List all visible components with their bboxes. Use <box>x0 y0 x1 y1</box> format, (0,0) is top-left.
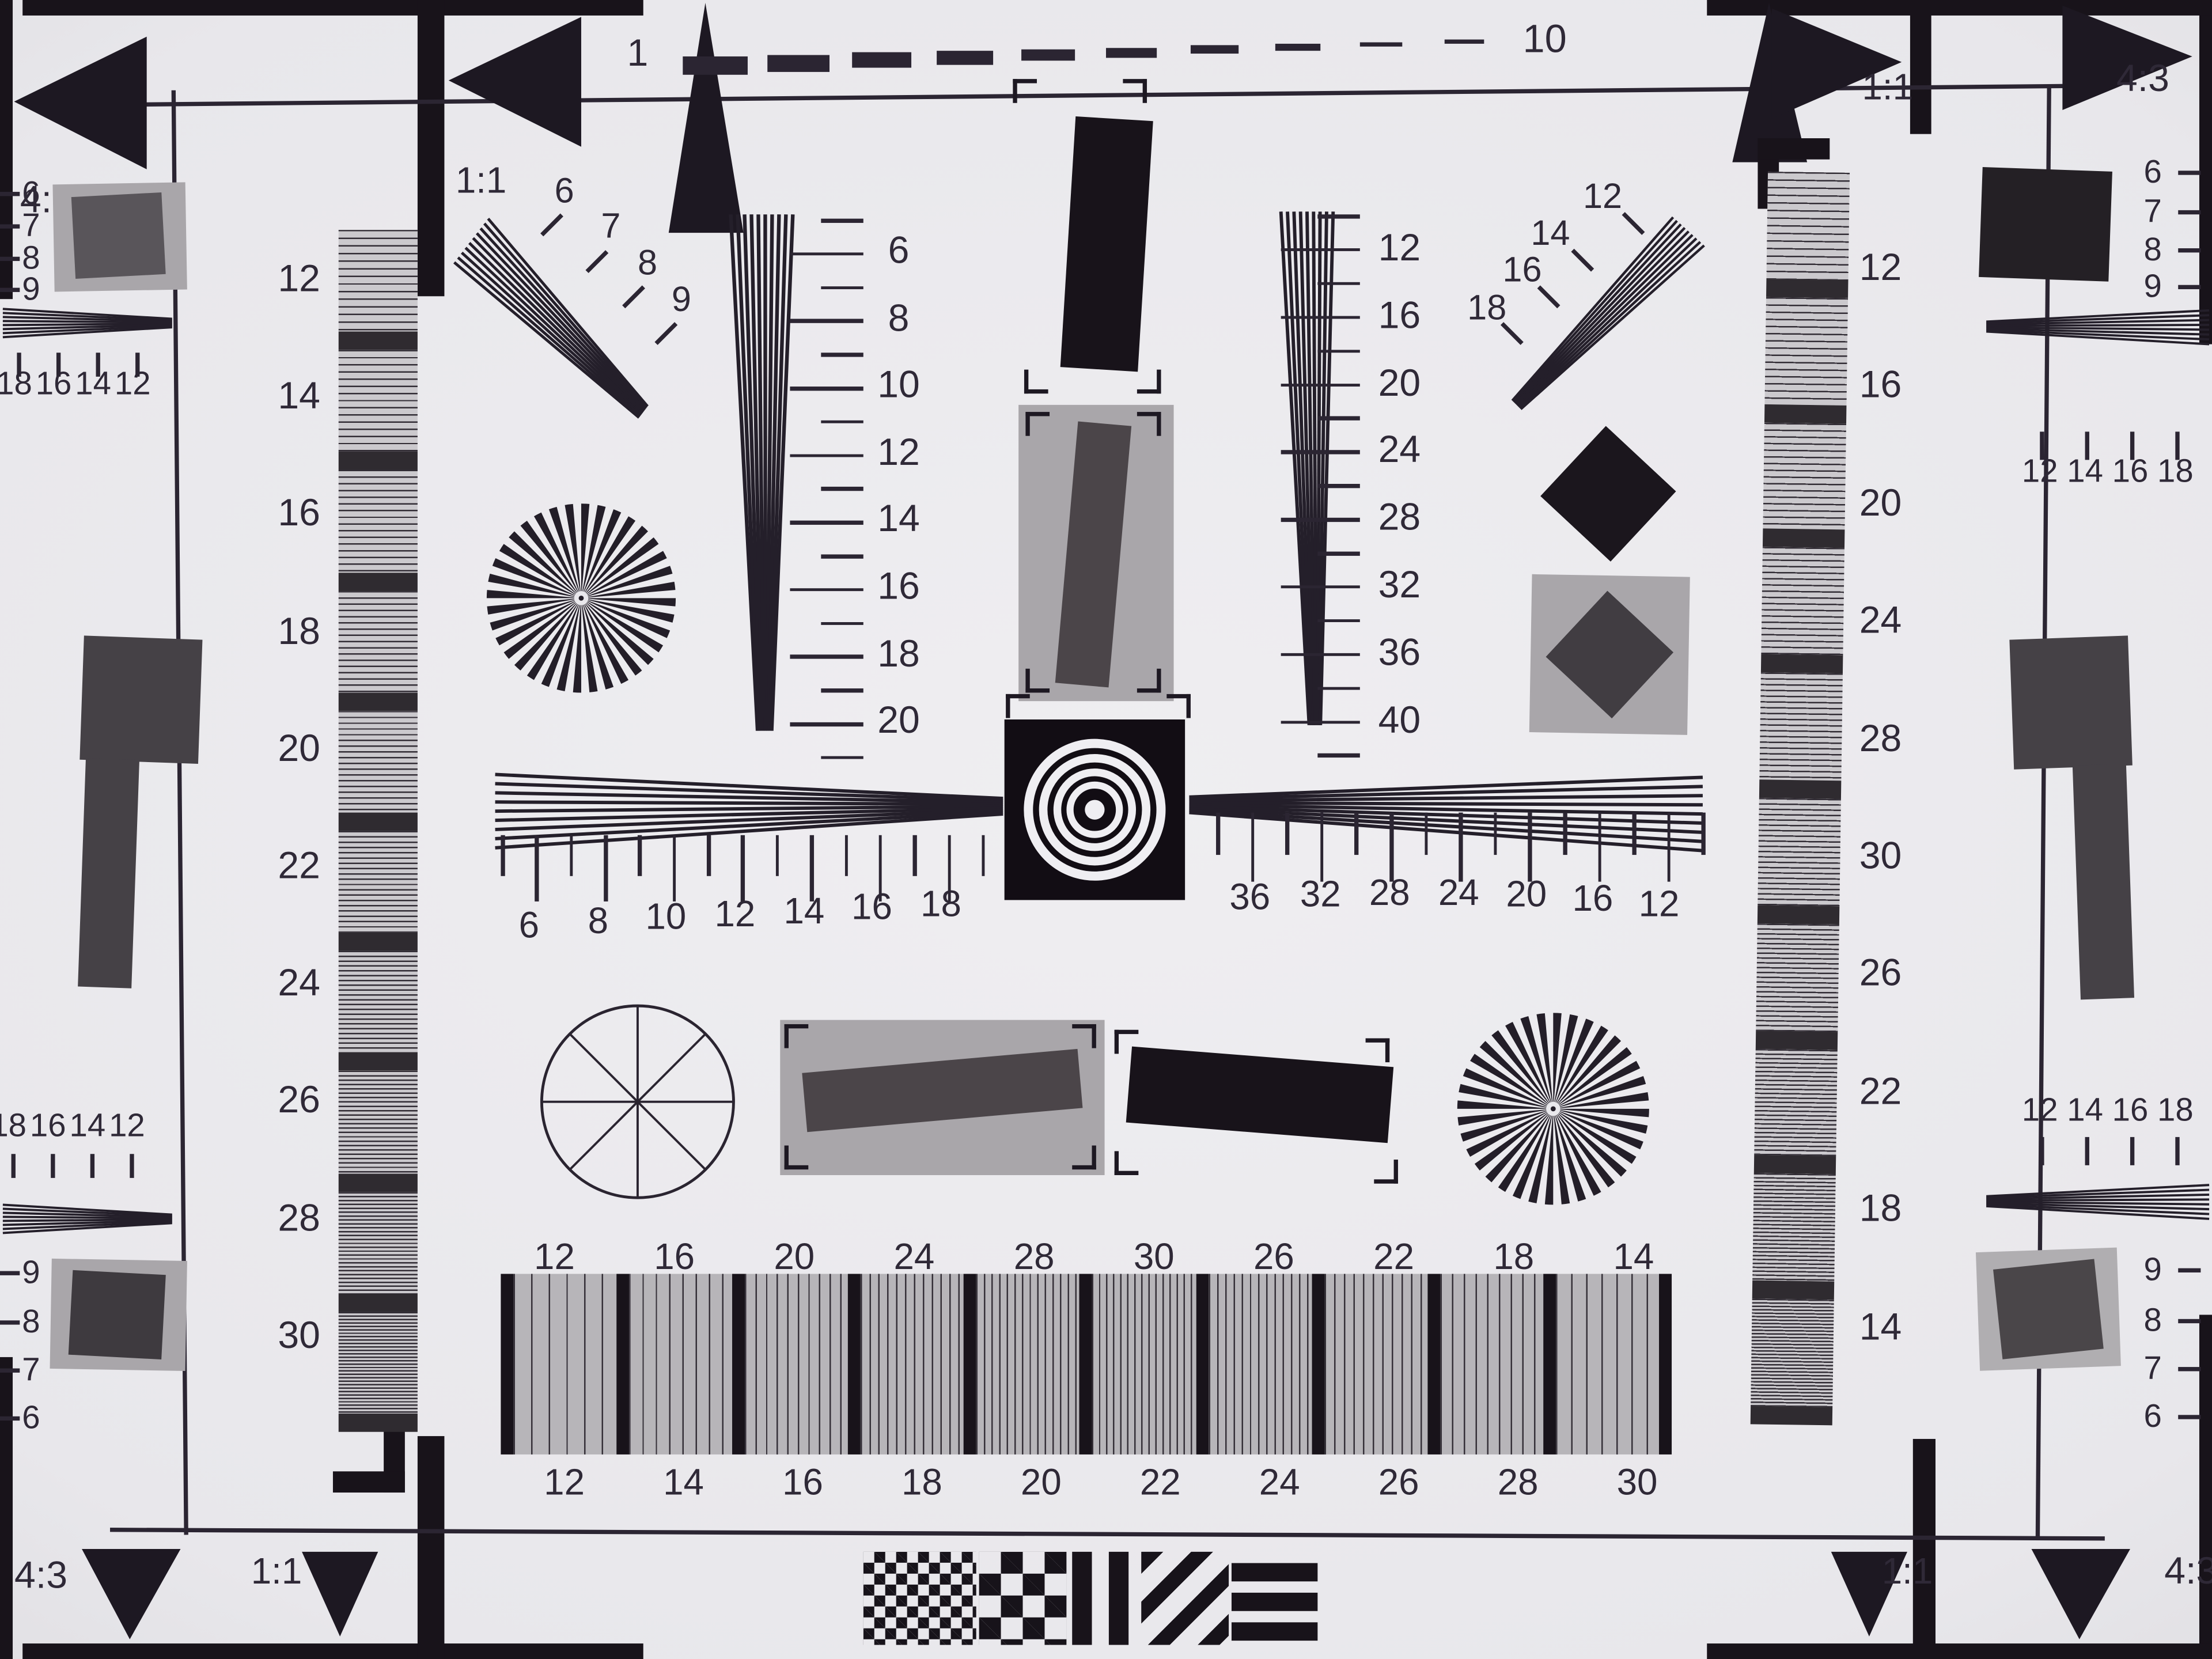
scale-label: 30 <box>1134 1235 1175 1279</box>
scale-label: 26 <box>1253 1235 1294 1279</box>
scale-label: 20 <box>1859 482 1902 525</box>
ruler-tick <box>790 319 863 323</box>
ruler-tick <box>790 521 863 524</box>
edge-dash <box>2178 1367 2200 1371</box>
horizontal-bar-pattern <box>1232 1563 1317 1581</box>
right-top-edge-wedge <box>1983 308 2212 347</box>
edge-dash <box>2178 1319 2200 1323</box>
edge-dash <box>0 1369 20 1373</box>
scale-label: 18 <box>2157 1091 2194 1129</box>
scale-label: 16 <box>278 492 320 536</box>
scale-label: 16 <box>30 1107 66 1145</box>
ruler-tick <box>821 487 863 491</box>
scale-label: 14 <box>278 375 320 419</box>
scale-label: 32 <box>1378 563 1421 607</box>
edge-dash <box>0 257 20 261</box>
scale-label: 22 <box>1859 1070 1902 1113</box>
ruler-tick <box>1285 813 1289 855</box>
scale-label: 24 <box>1859 599 1902 643</box>
edge-dash <box>0 1416 20 1421</box>
ruler-tick <box>1281 653 1360 656</box>
edge-label: 7 <box>2143 192 2161 230</box>
scale-label: 26 <box>1378 1461 1419 1505</box>
scale-label: 16 <box>782 1461 823 1505</box>
ruler-tick <box>1459 813 1463 882</box>
edge-label: 9 <box>22 1253 40 1291</box>
ruler-tick <box>821 353 863 357</box>
ruler-dash <box>767 55 829 71</box>
upper-left-fan <box>444 211 656 423</box>
spoke-circle <box>539 1003 737 1200</box>
scale-label: 20 <box>774 1235 815 1279</box>
scale-label: 12 <box>1583 177 1622 218</box>
vertical-bar-pattern <box>1109 1552 1128 1645</box>
ruler-tick <box>1317 349 1359 353</box>
ruler-tick <box>638 835 642 876</box>
scale-label: 26 <box>1859 952 1902 996</box>
scale-label: 28 <box>1014 1235 1055 1279</box>
scale-label: 24 <box>1378 429 1421 472</box>
edge-label: 7 <box>22 1351 40 1389</box>
vertical-bar-pattern <box>1072 1552 1092 1645</box>
ruler-tick <box>1281 720 1360 724</box>
ruler-tick <box>1281 316 1360 319</box>
ruler-tick <box>1320 813 1324 882</box>
ruler-tick <box>570 835 573 876</box>
edge-tick <box>96 353 100 377</box>
scale-label: 12 <box>544 1461 585 1505</box>
scale-label: 20 <box>278 727 320 771</box>
horizontal-bar-pattern <box>1232 1593 1317 1611</box>
scale-label: 18 <box>0 1107 26 1145</box>
edge-dash <box>0 1271 20 1275</box>
scale-label: 12 <box>278 257 320 301</box>
edge-dash <box>0 1320 20 1324</box>
edge-dash <box>2178 285 2200 289</box>
scale-label: 36 <box>1229 876 1270 919</box>
scale-label: 18 <box>921 882 961 926</box>
scale-label: 24 <box>1259 1461 1300 1505</box>
scale-label: 14 <box>784 889 825 933</box>
scale-label: 14 <box>2067 1091 2103 1129</box>
edge-label: 9 <box>22 270 40 308</box>
scale-label: 16 <box>1572 877 1613 921</box>
scale-label: 7 <box>601 207 620 248</box>
edge-label: 6 <box>2143 1397 2161 1435</box>
edge-tick <box>56 353 60 377</box>
scale-label: 30 <box>1859 835 1902 878</box>
scale-label: 24 <box>278 961 320 1005</box>
siemens-star-left <box>487 503 676 692</box>
ruler-dash <box>1106 47 1157 58</box>
scale-label: 14 <box>663 1461 704 1505</box>
scale-label: 8 <box>888 297 910 340</box>
ruler-tick <box>1317 282 1359 285</box>
edge-tick <box>130 1154 133 1178</box>
ruler-dash <box>1191 46 1238 54</box>
scale-label: 10 <box>877 363 920 407</box>
edge-dash <box>2178 1268 2200 1272</box>
scale-label: 12 <box>715 892 756 936</box>
edge-label: 8 <box>22 1303 40 1341</box>
scale-label: 22 <box>1140 1461 1181 1505</box>
edge-tick <box>12 1154 15 1178</box>
scale-label: 28 <box>1859 717 1902 760</box>
right-bottom-edge-wedge <box>1983 1182 2212 1222</box>
ruler-tick <box>821 286 863 289</box>
ruler-tick <box>913 835 916 876</box>
scale-label: 22 <box>1373 1235 1414 1279</box>
ruler-dash <box>1021 49 1075 61</box>
ruler-tick <box>790 252 863 256</box>
ruler-tick <box>1424 813 1427 855</box>
ruler-tick <box>1281 383 1360 387</box>
edge-dash <box>2178 248 2200 252</box>
scale-label: 14 <box>1531 214 1570 255</box>
scale-label: 30 <box>278 1314 320 1358</box>
ruler-dash <box>683 56 748 75</box>
edge-label: 6 <box>22 1399 40 1437</box>
edge-label: 9 <box>2143 1251 2161 1289</box>
ruler-tick <box>673 835 676 902</box>
ruler-tick <box>1281 450 1360 454</box>
ruler-tick <box>821 420 863 423</box>
scale-label: 14 <box>1613 1235 1654 1279</box>
edge-label: 9 <box>2143 267 2161 305</box>
ruler-tick <box>790 387 863 390</box>
ruler-tick <box>1528 813 1532 882</box>
scale-label: 20 <box>1506 873 1547 916</box>
left-top-edge-wedge <box>0 305 175 342</box>
horizontal-bar-pattern <box>1232 1622 1317 1641</box>
ruler-tick <box>707 835 710 876</box>
siemens-star-right <box>1457 1013 1649 1205</box>
scale-label: 9 <box>672 280 691 321</box>
scale-label: 12 <box>2022 1091 2058 1129</box>
ruler-tick <box>1317 754 1359 757</box>
edge-dash <box>0 224 20 228</box>
ruler-tick <box>982 835 985 876</box>
ruler-tick <box>535 835 539 902</box>
scale-label: 14 <box>1859 1305 1902 1349</box>
scale-label: 20 <box>877 699 920 743</box>
scale-label: 18 <box>0 365 32 403</box>
ruler-tick <box>1317 214 1359 218</box>
scale-label: 24 <box>894 1235 935 1279</box>
scale-label: 20 <box>1378 361 1421 405</box>
scale-label: 8 <box>588 899 608 943</box>
scale-label: 16 <box>1502 251 1541 291</box>
ruler-dash <box>852 53 911 68</box>
scale-label: 16 <box>654 1235 695 1279</box>
scale-label: 16 <box>1378 294 1421 338</box>
ruler-tick <box>1633 813 1636 855</box>
scale-label: 36 <box>1378 631 1421 675</box>
ring-target <box>1005 719 1185 900</box>
scale-label: 16 <box>851 885 892 929</box>
scale-label: 12 <box>1378 226 1421 270</box>
edge-tick <box>2175 1137 2179 1165</box>
scale-label: 18 <box>1493 1235 1534 1279</box>
edge-tick <box>2175 431 2179 460</box>
scale-label: 16 <box>877 565 920 609</box>
edge-dash <box>0 192 20 196</box>
ruler-tick <box>1563 813 1566 855</box>
ruler-tick <box>1317 619 1359 623</box>
scale-label: 10 <box>646 895 687 939</box>
resolution-test-chart: 4:3 1:1 1:1 4:3 4:3 1:1 1:1 4:3 1 10 <box>0 0 2212 1659</box>
edge-tick <box>90 1154 94 1178</box>
scale-label: 16 <box>36 365 72 403</box>
ruler-tick <box>775 835 779 876</box>
ruler-tick <box>821 689 863 692</box>
scale-label: 18 <box>1467 289 1506 329</box>
scale-label: 12 <box>1859 246 1902 290</box>
ruler-tick <box>790 588 863 592</box>
edge-tick <box>2130 431 2134 460</box>
edge-tick <box>2085 1137 2089 1165</box>
ruler-tick <box>1494 813 1497 855</box>
edge-label: 6 <box>2143 153 2161 191</box>
edge-tick <box>2130 1137 2134 1165</box>
scale-label: 22 <box>278 844 320 888</box>
scale-label: 18 <box>902 1461 942 1505</box>
scale-label: 26 <box>278 1079 320 1123</box>
center-left-fan <box>491 767 1007 852</box>
diagonal-stripe-pattern <box>1141 1552 1229 1645</box>
edge-dash <box>2178 1415 2200 1419</box>
scale-label: 30 <box>1617 1461 1658 1505</box>
scale-label: 8 <box>638 243 657 284</box>
ruler-tick <box>1389 813 1393 882</box>
ruler-tick <box>821 219 863 222</box>
edge-tick <box>135 353 139 377</box>
ruler-tick <box>948 835 951 902</box>
ruler-tick <box>1702 813 1705 855</box>
ruler-tick <box>878 835 882 902</box>
fine-checkerboard <box>863 1552 976 1645</box>
scale-label: 14 <box>75 365 111 403</box>
ruler-tick <box>790 454 863 457</box>
ruler-tick <box>821 756 863 759</box>
scale-label: 18 <box>278 609 320 653</box>
scale-label: 14 <box>69 1107 105 1145</box>
scale-label: 12 <box>109 1107 145 1145</box>
ruler-tick <box>790 655 863 658</box>
scale-label: 28 <box>278 1196 320 1240</box>
center-right-fan <box>1185 767 1707 855</box>
ruler-dash <box>937 51 993 64</box>
ruler-dash <box>1360 41 1402 47</box>
scale-label: 12 <box>534 1235 575 1279</box>
edge-dash <box>0 288 20 292</box>
edge-label: 8 <box>2143 230 2161 268</box>
ruler-tick <box>1598 813 1601 882</box>
ruler-tick <box>1216 813 1219 855</box>
scale-label: 6 <box>888 229 910 273</box>
edge-tick <box>17 353 20 377</box>
scale-label: 18 <box>877 632 920 676</box>
ruler-tick <box>790 722 863 726</box>
ruler-dash <box>1445 40 1484 43</box>
edge-dash <box>2178 171 2200 175</box>
edge-tick <box>2040 431 2043 460</box>
ruler-dash <box>1275 44 1320 51</box>
edge-tick <box>2085 431 2089 460</box>
ruler-tick <box>1317 416 1359 420</box>
ruler-tick <box>1251 813 1254 882</box>
ruler-tick <box>604 835 607 902</box>
scale-label: 12 <box>115 365 151 403</box>
ruler-tick <box>1317 687 1359 690</box>
ruler-tick <box>821 554 863 558</box>
ruler-tick <box>1317 552 1359 555</box>
scale-label: 20 <box>1021 1461 1062 1505</box>
edge-dash <box>2178 210 2200 214</box>
scale-label: 28 <box>1498 1461 1539 1505</box>
scale-label: 6 <box>519 904 539 948</box>
edge-tick <box>2040 1137 2043 1165</box>
scale-label: 12 <box>877 431 920 475</box>
ruler-tick <box>1317 484 1359 487</box>
scale-label: 6 <box>555 172 574 213</box>
left-bottom-edge-wedge <box>0 1199 175 1236</box>
scale-label: 18 <box>1859 1187 1902 1231</box>
scale-label: 14 <box>877 498 920 541</box>
ruler-tick <box>501 835 504 876</box>
scale-label: 28 <box>1378 496 1421 540</box>
edge-label: 7 <box>2143 1349 2161 1387</box>
scale-label: 16 <box>2112 1091 2149 1129</box>
scale-label: 12 <box>1639 882 1680 926</box>
scale-label: 16 <box>1859 364 1902 408</box>
ruler-tick <box>844 835 848 876</box>
ruler-tick <box>1667 813 1671 882</box>
ruler-tick <box>1281 518 1360 521</box>
ruler-tick <box>1355 813 1358 855</box>
scale-label: 40 <box>1378 698 1421 742</box>
ruler-tick <box>821 622 863 625</box>
ruler-tick <box>1281 585 1360 589</box>
edge-tick <box>51 1154 54 1178</box>
ruler-tick <box>1281 248 1360 252</box>
edge-label: 8 <box>2143 1301 2161 1339</box>
coarse-checkerboard <box>979 1552 1067 1645</box>
ruler-tick <box>810 835 813 902</box>
ruler-tick <box>741 835 745 902</box>
